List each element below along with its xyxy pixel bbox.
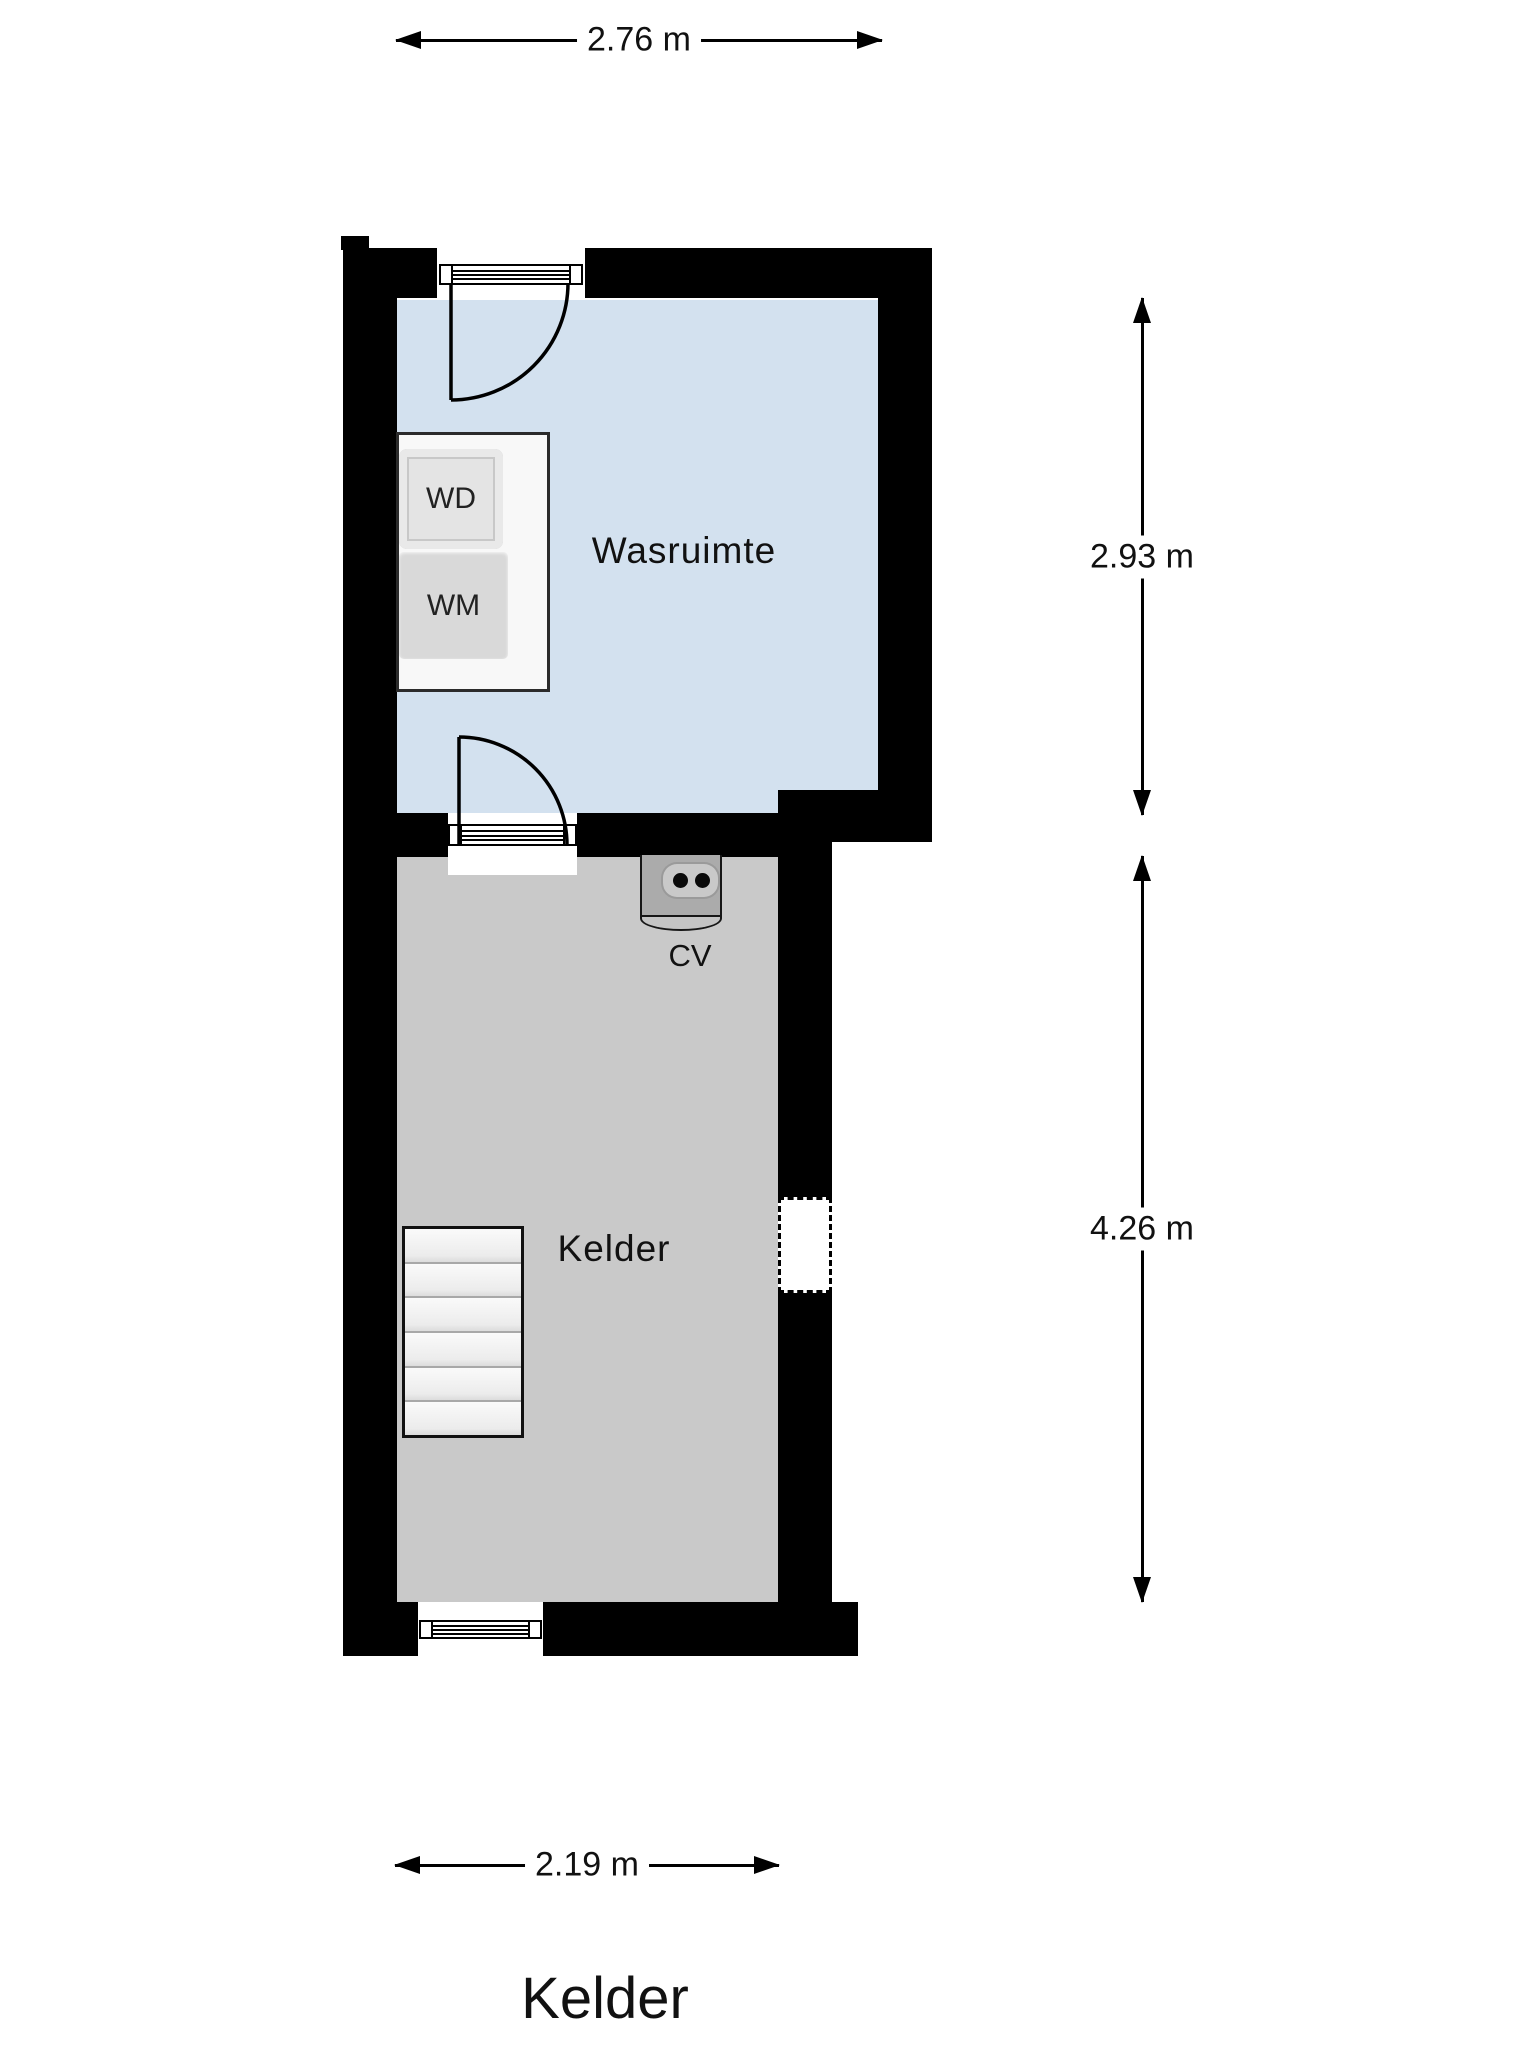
wall-left	[343, 248, 397, 1656]
dimension-bottom-width-label: 2.19 m	[525, 1844, 649, 1887]
wall-middle-outer-step	[832, 813, 932, 842]
boiler-socket-dot	[695, 873, 710, 888]
wall-middle-right-segment	[577, 813, 832, 857]
boiler-label: CV	[650, 938, 730, 974]
dimension-top-width: 2.76 m	[396, 18, 882, 62]
wall-basement-right-upper	[778, 857, 832, 1197]
dimension-laundry-height-label: 2.93 m	[1080, 535, 1204, 578]
arrow-left-icon	[394, 1856, 420, 1874]
plan-title: Kelder	[405, 1962, 805, 2034]
stair-tread	[405, 1402, 521, 1435]
washer-unit: WM	[399, 552, 508, 659]
arrow-down-icon	[1133, 790, 1151, 816]
entry-door-swing-icon	[449, 281, 571, 403]
dryer-label: WD	[426, 482, 476, 516]
floorplan-canvas: WD WM CV Wasruimte Kelder 2.76 m 2.19 m …	[0, 0, 1536, 2048]
wall-right-upper	[878, 248, 932, 842]
laundry-room-label: Wasruimte	[584, 532, 784, 570]
dimension-basement-height-label: 4.26 m	[1080, 1208, 1204, 1251]
stair-tread	[405, 1229, 521, 1264]
wall-bottom-right-segment	[543, 1602, 858, 1656]
inner-door-swing-icon	[457, 735, 569, 847]
stair-tread	[405, 1333, 521, 1368]
dimension-basement-height: 4.26 m	[1120, 856, 1164, 1602]
dimension-laundry-height: 2.93 m	[1120, 298, 1164, 815]
stair-tread	[405, 1298, 521, 1333]
arrow-up-icon	[1133, 855, 1151, 881]
wall-middle-left-segment	[343, 813, 448, 857]
basement-room-label: Kelder	[514, 1230, 714, 1268]
washer-label: WM	[427, 589, 480, 623]
stair-tread	[405, 1368, 521, 1403]
arrow-right-icon	[754, 1856, 780, 1874]
arrow-right-icon	[857, 31, 883, 49]
stair-tread	[405, 1264, 521, 1299]
wall-bottom-left-block	[343, 1602, 418, 1656]
basement-stairs	[402, 1226, 524, 1438]
arrow-left-icon	[395, 31, 421, 49]
door-threshold	[448, 857, 577, 875]
boiler-socket-dot	[673, 873, 688, 888]
arrow-down-icon	[1133, 1577, 1151, 1603]
wall-laundry-corner-fill	[778, 790, 878, 813]
dimension-bottom-width: 2.19 m	[395, 1843, 779, 1887]
basement-window	[419, 1620, 542, 1639]
dimension-top-width-label: 2.76 m	[577, 19, 701, 62]
arrow-up-icon	[1133, 297, 1151, 323]
dryer-unit: WD	[399, 449, 503, 549]
basement-passage-opening	[778, 1197, 832, 1293]
